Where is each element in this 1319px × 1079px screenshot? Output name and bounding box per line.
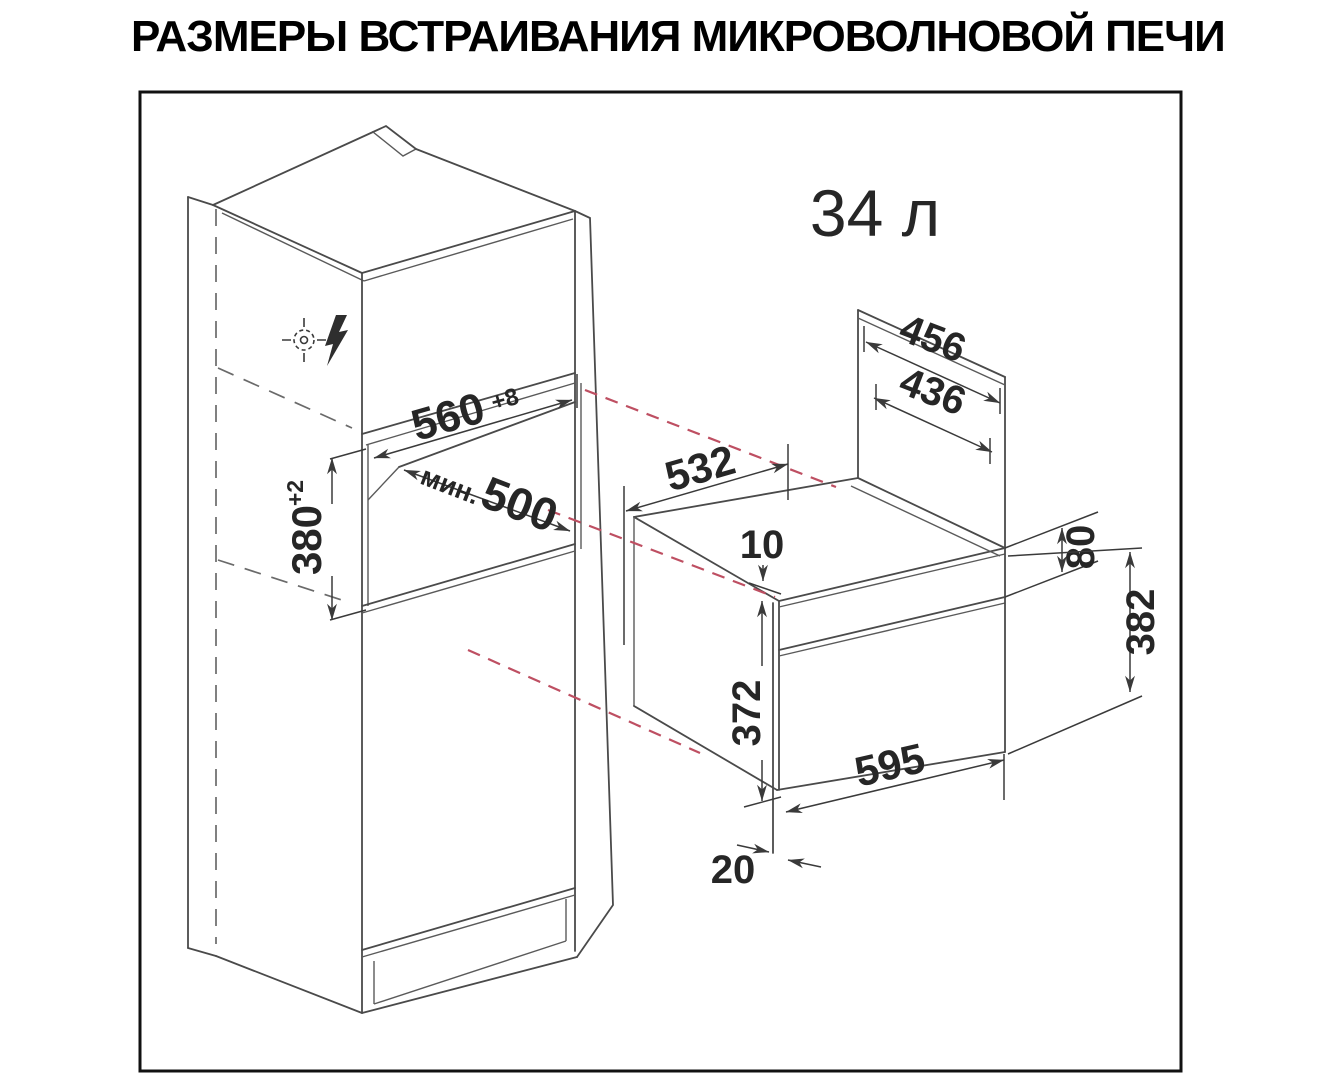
- page: РАЗМЕРЫ ВСТРАИВАНИЯ МИКРОВОЛНОВОЙ ПЕЧИ: [0, 0, 1319, 1079]
- dim-control-panel-height: 80: [1059, 525, 1103, 570]
- dim-total-height: 382: [1119, 589, 1163, 656]
- dim-top-gap: 10: [740, 523, 785, 567]
- dim-door-overhang: 20: [711, 848, 756, 892]
- dim-niche-height: 380: [283, 505, 330, 575]
- dim-door-height: 372: [725, 680, 769, 747]
- technical-drawing: 560 +8 мин. 500 380 +2 456 436: [0, 0, 1319, 1079]
- drawing-frame: [140, 92, 1181, 1071]
- capacity-label: 34 л: [810, 176, 940, 250]
- dim-niche-height-tol: +2: [282, 480, 308, 506]
